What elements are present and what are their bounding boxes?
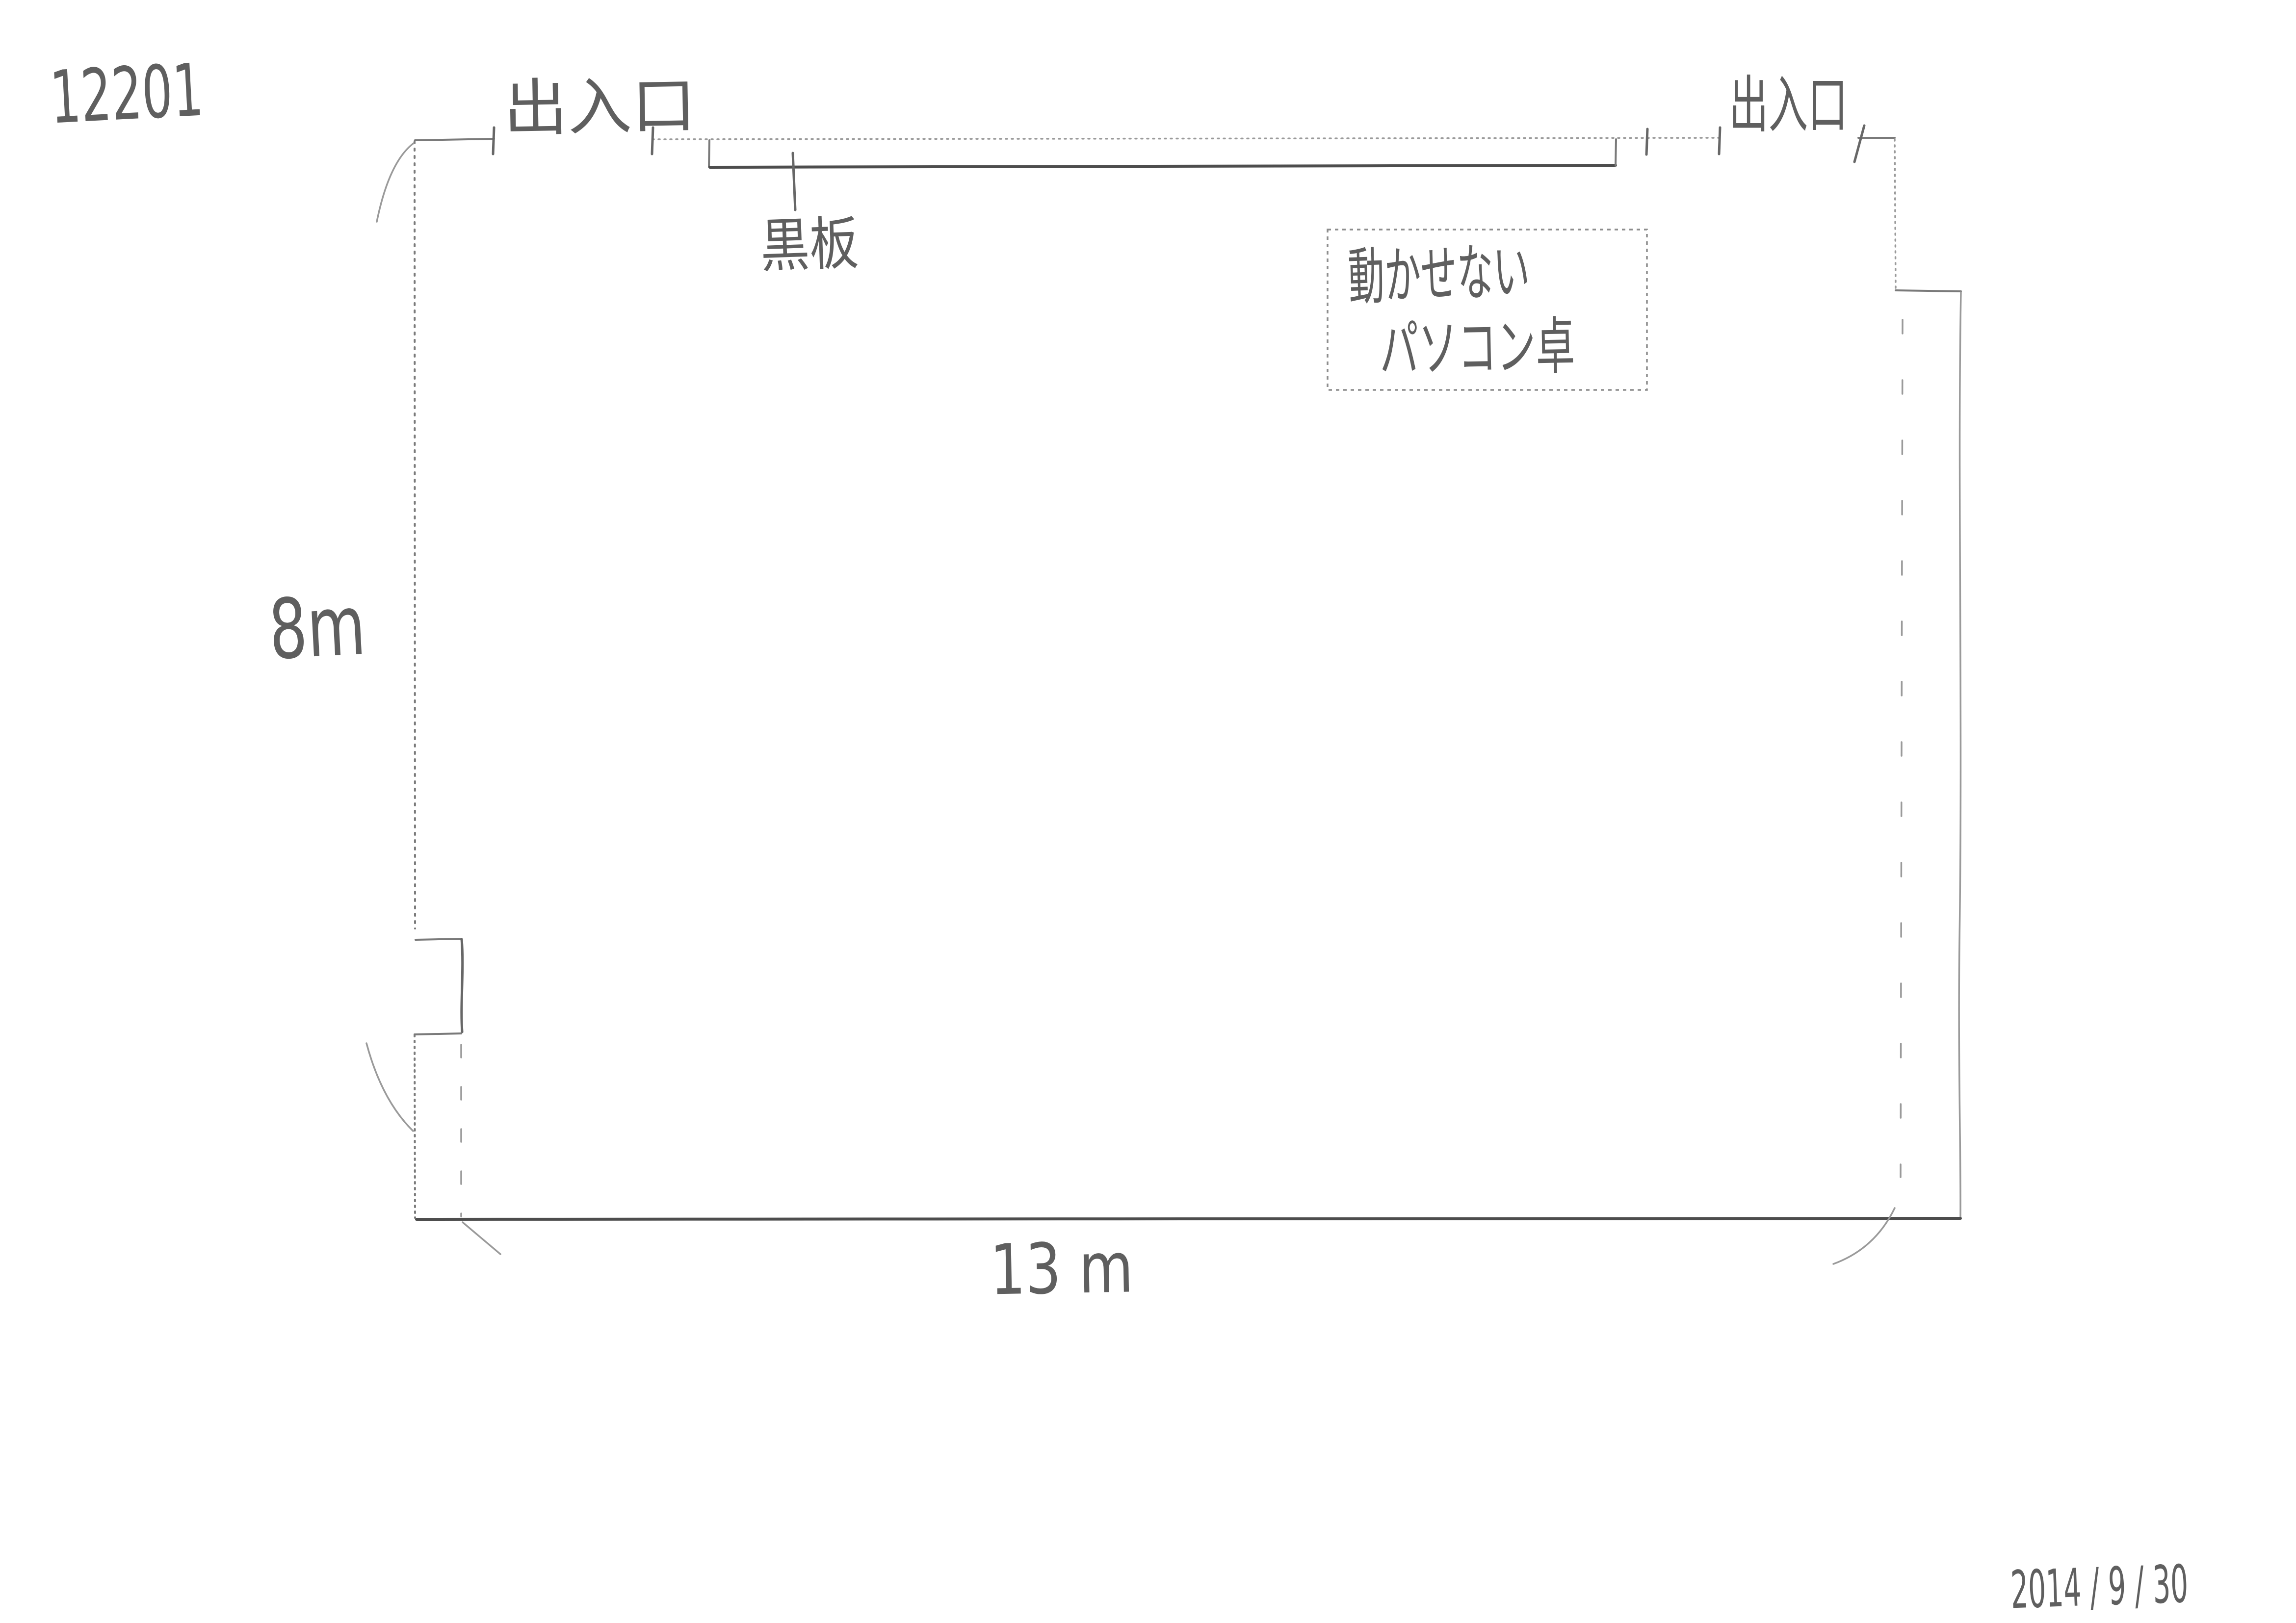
bottom-left-door-arc xyxy=(366,1043,413,1131)
blackboard-right-edge xyxy=(1616,139,1616,166)
scanned-floor-plan-page: 黒板 動かせない パソコン卓 出入口 出入口 8m 13 m 12201 201… xyxy=(0,0,2296,1623)
left-notch-side xyxy=(462,939,463,1032)
pc-desk-label-line2: パソコン卓 xyxy=(1379,310,1576,386)
top-wall-left-stub xyxy=(415,139,494,140)
entrance-left-label: 出入口 xyxy=(503,70,697,145)
bottom-right-door-arc xyxy=(1833,1208,1895,1264)
left-notch-bottom xyxy=(415,1033,461,1034)
blackboard-label: 黒板 xyxy=(759,209,860,281)
top-left-door-arc xyxy=(377,143,414,222)
date-note: 2014 / 9 / 30 xyxy=(2009,1554,2189,1621)
floor-plan-drawing: 黒板 動かせない パソコン卓 出入口 出入口 8m 13 m 12201 201… xyxy=(0,0,2296,1623)
bottom-wall xyxy=(417,1217,1960,1219)
left-notch-top xyxy=(416,939,461,940)
dimension-height-label: 8m xyxy=(267,577,368,678)
door-tick-left-a xyxy=(493,128,494,154)
blackboard-left-edge xyxy=(709,140,709,167)
right-wall-inner-dashes xyxy=(1901,320,1903,1177)
dimension-width-label: 13 m xyxy=(990,1227,1134,1311)
left-wall-lower xyxy=(415,1035,415,1218)
entrance-right-label: 出入口 xyxy=(1729,69,1848,141)
door-tick-right-b xyxy=(1854,126,1864,162)
wall-tick-mid xyxy=(1646,129,1647,155)
room-number: 12201 xyxy=(48,48,206,140)
top-right-step-horizontal xyxy=(1896,290,1961,291)
door-tick-right-a xyxy=(1719,128,1720,154)
blackboard-leader-line xyxy=(793,153,795,210)
blackboard-front-edge xyxy=(710,165,1616,167)
pc-desk-label-line1: 動かせない xyxy=(1347,235,1531,313)
left-wall-upper xyxy=(415,141,415,928)
bottom-left-door-leaf xyxy=(463,1222,500,1254)
top-right-step-vertical xyxy=(1895,139,1896,289)
right-wall xyxy=(1959,292,1961,1218)
top-wall-middle xyxy=(652,138,1720,139)
